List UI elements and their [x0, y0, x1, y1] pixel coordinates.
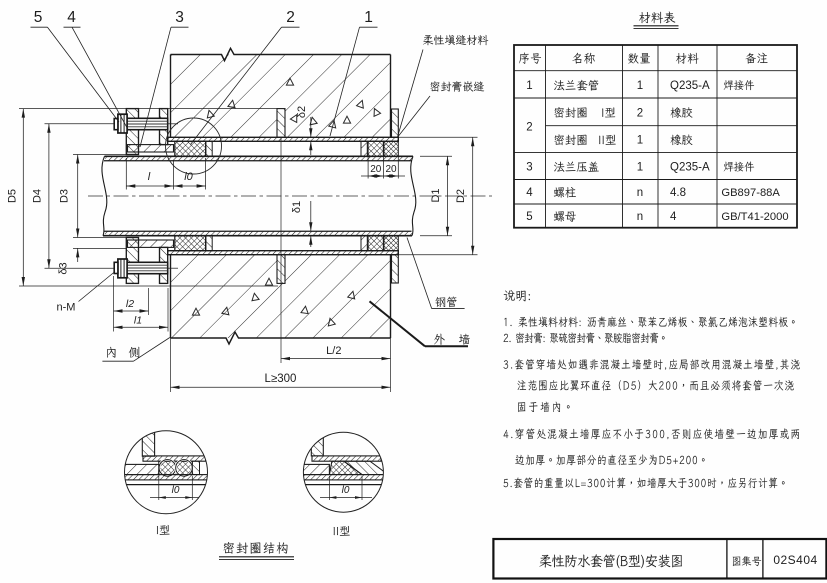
svg-text:L/2: L/2	[326, 345, 341, 357]
svg-text:5: 5	[526, 211, 532, 223]
svg-text:3: 3	[526, 162, 532, 174]
svg-text:δ3: δ3	[58, 262, 70, 274]
svg-text:02S404: 02S404	[773, 553, 817, 567]
svg-text:D5: D5	[7, 189, 19, 203]
svg-text:l2: l2	[126, 298, 134, 310]
svg-text:n: n	[637, 211, 643, 223]
svg-text:D2: D2	[455, 189, 467, 203]
svg-text:δ1: δ1	[291, 201, 303, 213]
svg-text:4: 4	[526, 187, 533, 199]
svg-text:GB/T41-2000: GB/T41-2000	[721, 211, 788, 223]
svg-text:n: n	[637, 187, 643, 199]
svg-text:Q235-A: Q235-A	[670, 80, 710, 92]
svg-text:1: 1	[637, 80, 643, 92]
svg-text:4.8: 4.8	[670, 187, 686, 199]
svg-text:3: 3	[175, 9, 184, 26]
svg-text:GB897-88A: GB897-88A	[721, 187, 780, 199]
svg-text:2: 2	[526, 122, 532, 134]
svg-text:1: 1	[526, 80, 532, 92]
svg-text:n-M: n-M	[57, 302, 76, 314]
svg-text:5: 5	[34, 9, 43, 26]
svg-text:Q235-A: Q235-A	[670, 162, 710, 174]
svg-text:L≥300: L≥300	[265, 373, 297, 385]
svg-text:l0: l0	[184, 171, 193, 183]
svg-text:1: 1	[364, 9, 373, 26]
svg-text:l1: l1	[134, 315, 142, 327]
svg-text:2: 2	[286, 9, 295, 26]
svg-text:20: 20	[370, 164, 382, 175]
svg-text:l0: l0	[172, 485, 180, 496]
svg-text:4: 4	[67, 9, 76, 26]
svg-text:1: 1	[637, 162, 643, 174]
svg-text:l: l	[148, 171, 151, 183]
svg-text:δ2: δ2	[296, 106, 308, 118]
svg-text:2: 2	[637, 107, 643, 119]
svg-text:D1: D1	[430, 188, 442, 202]
svg-text:20: 20	[385, 164, 397, 175]
svg-text:l0: l0	[342, 485, 350, 496]
svg-text:1: 1	[637, 135, 643, 147]
svg-text:D3: D3	[59, 189, 71, 203]
svg-text:D4: D4	[31, 189, 43, 203]
svg-text:4: 4	[670, 211, 677, 223]
